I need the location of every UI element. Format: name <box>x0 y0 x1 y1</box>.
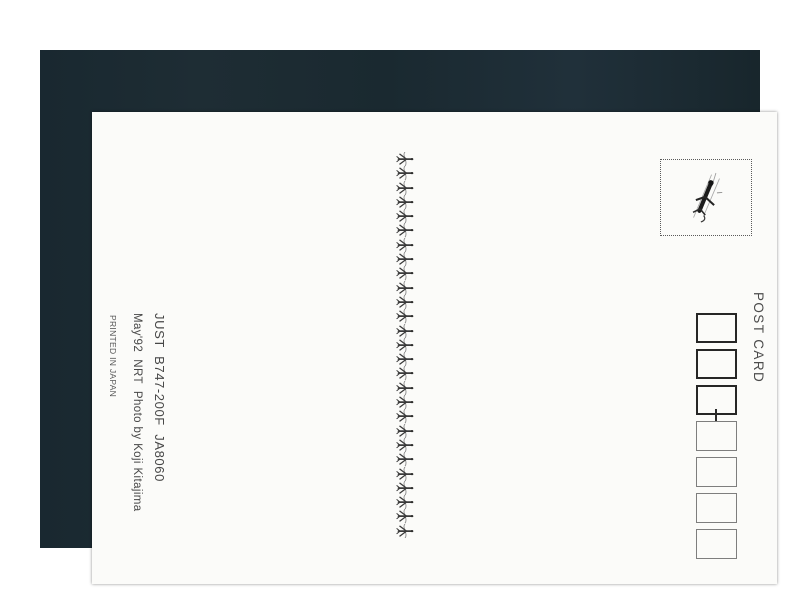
credit-line-photographer: May'92 NRT Photo by Koji Kitajima <box>131 313 143 512</box>
postcard-back: JUST B747-200F JA8060 May'92 NRT Photo b… <box>92 112 777 584</box>
airplane-icon <box>394 295 416 309</box>
airplane-icon <box>394 252 416 266</box>
airplane-icon <box>394 495 416 509</box>
airplane-icon <box>394 409 416 423</box>
airplane-icon <box>394 452 416 466</box>
airplane-icon <box>394 467 416 481</box>
airplane-icon <box>394 352 416 366</box>
airplane-icon <box>394 195 416 209</box>
airplane-sketch-icon <box>682 167 730 227</box>
postal-code-boxes <box>696 313 737 559</box>
airplane-icon <box>394 181 416 195</box>
postcard-scan-page: JUST B747-200F JA8060 May'92 NRT Photo b… <box>0 0 800 600</box>
airplane-icon <box>394 481 416 495</box>
post-card-label: POST CARD <box>751 292 766 383</box>
airplane-icon <box>394 166 416 180</box>
airplane-icon <box>394 281 416 295</box>
postal-code-box <box>696 313 737 343</box>
airplane-icon <box>394 223 416 237</box>
airplane-icon <box>394 338 416 352</box>
airplane-icon <box>394 395 416 409</box>
airplane-icon <box>394 152 416 166</box>
airplane-icon <box>394 438 416 452</box>
postal-code-box <box>696 529 737 559</box>
airplane-icon <box>394 424 416 438</box>
airplane-icon <box>394 366 416 380</box>
airplane-icon <box>394 238 416 252</box>
credit-line-printed-in-japan: PRINTED IN JAPAN <box>108 315 118 397</box>
airplane-icon <box>394 524 416 538</box>
postal-code-box <box>696 421 737 451</box>
postal-code-box <box>696 493 737 523</box>
postal-code-separator <box>715 409 717 421</box>
airplane-icon <box>394 324 416 338</box>
airplane-icon <box>394 266 416 280</box>
postal-code-box <box>696 457 737 487</box>
airplane-icon <box>394 309 416 323</box>
photo-dark-frame: JUST B747-200F JA8060 May'92 NRT Photo b… <box>40 50 760 548</box>
credit-line-aircraft: JUST B747-200F JA8060 <box>152 313 167 482</box>
airplane-chain-divider <box>394 152 416 538</box>
stamp-box <box>660 159 752 236</box>
postal-code-box <box>696 349 737 379</box>
airplane-icon <box>394 209 416 223</box>
airplane-icon <box>394 509 416 523</box>
airplane-icon <box>394 381 416 395</box>
